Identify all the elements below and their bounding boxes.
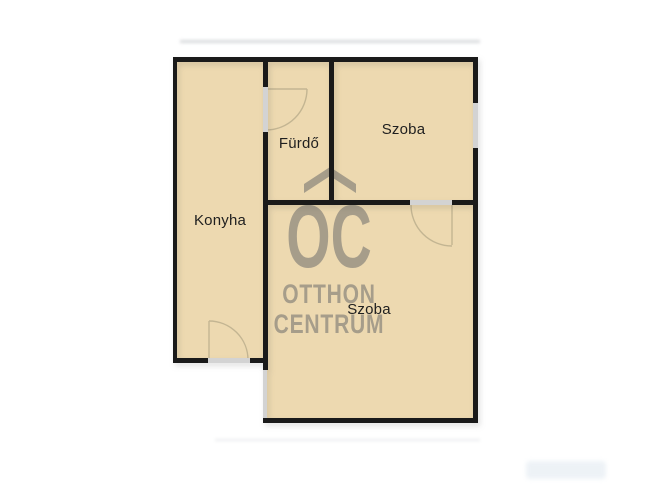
- floorplan-image: OC OTTHON CENTRUM: [0, 0, 658, 500]
- label-furdo: Fürdő: [266, 136, 332, 151]
- label-szoba-bottom: Szoba: [339, 302, 399, 317]
- room-labels: Konyha Fürdő Szoba Szoba: [0, 0, 658, 500]
- label-konyha: Konyha: [175, 213, 265, 228]
- label-szoba-top: Szoba: [332, 122, 475, 137]
